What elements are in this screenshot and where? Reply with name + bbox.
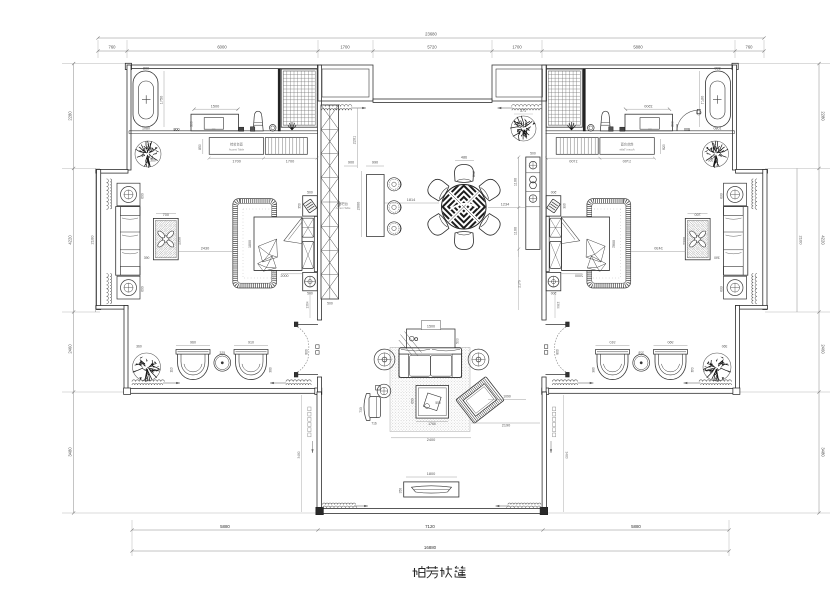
svg-text:1700: 1700 (569, 159, 577, 163)
svg-text:1700: 1700 (512, 45, 522, 50)
svg-text:16880: 16880 (424, 545, 437, 550)
svg-text:1700: 1700 (286, 159, 294, 163)
svg-text:500: 500 (551, 191, 557, 195)
svg-text:910: 910 (248, 340, 254, 344)
svg-text:300: 300 (670, 121, 674, 127)
svg-text:Accent Table: Accent Table (229, 148, 245, 152)
svg-text:1080: 1080 (714, 126, 722, 130)
svg-text:1500: 1500 (644, 105, 652, 109)
svg-text:1750: 1750 (700, 96, 704, 104)
svg-text:800: 800 (143, 67, 149, 71)
svg-text:900: 900 (348, 161, 354, 165)
svg-text:3480: 3480 (297, 451, 301, 458)
svg-text:600: 600 (719, 193, 723, 199)
svg-text:325: 325 (638, 351, 644, 355)
svg-text:2400: 2400 (427, 438, 435, 442)
svg-text:1080: 1080 (142, 126, 150, 130)
svg-text:600: 600 (719, 286, 723, 292)
svg-text:1700: 1700 (623, 159, 631, 163)
svg-text:325: 325 (220, 351, 226, 355)
svg-text:500: 500 (456, 338, 460, 344)
svg-text:5880: 5880 (633, 45, 643, 50)
svg-text:500: 500 (530, 152, 536, 156)
svg-text:850: 850 (662, 144, 666, 150)
svg-text:390: 390 (714, 256, 720, 260)
svg-text:2280: 2280 (68, 111, 73, 121)
svg-text:Accent Table: Accent Table (336, 206, 351, 210)
svg-text:500: 500 (327, 302, 333, 306)
svg-text:1364: 1364 (306, 301, 310, 308)
svg-text:760: 760 (109, 45, 117, 50)
svg-text:1350: 1350 (682, 237, 686, 245)
svg-text:1800: 1800 (427, 472, 435, 476)
svg-text:1814: 1814 (407, 198, 415, 202)
svg-text:1090: 1090 (503, 394, 511, 398)
svg-text:酒吧台: 酒吧台 (338, 201, 349, 206)
svg-text:2460: 2460 (821, 344, 826, 354)
svg-text:812: 812 (472, 171, 476, 177)
svg-text:350: 350 (298, 203, 302, 209)
svg-text:360: 360 (136, 345, 142, 349)
svg-text:2430: 2430 (654, 247, 662, 251)
svg-text:1234: 1234 (501, 203, 509, 207)
svg-text:910: 910 (610, 340, 616, 344)
svg-text:1760: 1760 (428, 422, 436, 426)
svg-text:350: 350 (399, 488, 403, 494)
svg-text:600: 600 (141, 193, 145, 199)
svg-text:371: 371 (520, 109, 526, 113)
svg-text:3480: 3480 (68, 447, 73, 457)
svg-text:1100: 1100 (514, 178, 518, 186)
svg-text:110: 110 (690, 367, 694, 372)
svg-text:650: 650 (410, 398, 414, 404)
svg-text:500: 500 (307, 191, 313, 195)
svg-text:380: 380 (269, 367, 273, 373)
svg-text:850: 850 (198, 144, 202, 150)
svg-text:2460: 2460 (68, 344, 73, 354)
svg-text:380: 380 (591, 367, 595, 373)
svg-text:760: 760 (746, 45, 754, 50)
svg-text:5880: 5880 (631, 524, 641, 529)
svg-text:1350: 1350 (178, 237, 182, 245)
svg-text:6000: 6000 (217, 45, 227, 50)
svg-text:360: 360 (150, 159, 156, 163)
svg-text:600: 600 (141, 286, 145, 292)
svg-text:800: 800 (555, 349, 559, 355)
svg-text:360: 360 (708, 159, 714, 163)
svg-text:2000: 2000 (281, 274, 289, 278)
svg-text:486: 486 (461, 156, 467, 160)
svg-text:2100: 2100 (90, 235, 95, 245)
svg-text:800: 800 (714, 67, 720, 71)
svg-text:2000: 2000 (357, 202, 361, 210)
svg-text:716: 716 (371, 421, 377, 425)
svg-text:1364: 1364 (556, 301, 560, 308)
svg-text:2201: 2201 (353, 136, 357, 144)
svg-text:110: 110 (170, 367, 174, 372)
svg-text:1800: 1800 (612, 240, 616, 248)
svg-text:360: 360 (722, 345, 728, 349)
svg-text:1100: 1100 (514, 227, 518, 235)
svg-text:800: 800 (304, 349, 308, 355)
svg-text:23680: 23680 (425, 32, 437, 37)
svg-text:2430: 2430 (201, 247, 209, 251)
svg-text:2190: 2190 (502, 424, 510, 428)
svg-text:4220: 4220 (68, 235, 73, 245)
svg-text:350: 350 (562, 203, 566, 209)
svg-text:2280: 2280 (821, 111, 826, 121)
svg-text:3480: 3480 (821, 447, 826, 457)
svg-text:960: 960 (190, 340, 196, 344)
svg-text:550: 550 (435, 401, 441, 405)
svg-text:390: 390 (144, 256, 150, 260)
svg-text:1700: 1700 (340, 45, 350, 50)
svg-text:Accent Table: Accent Table (619, 148, 635, 152)
svg-text:1700: 1700 (232, 159, 240, 163)
svg-text:7120: 7120 (425, 524, 435, 529)
svg-text:3480: 3480 (565, 451, 569, 458)
svg-text:梳妆台面: 梳妆台面 (621, 142, 634, 147)
svg-text:500: 500 (551, 291, 557, 295)
svg-text:2179: 2179 (518, 280, 522, 288)
svg-text:1800: 1800 (248, 240, 252, 248)
svg-text:300: 300 (190, 121, 194, 127)
svg-text:730: 730 (359, 407, 363, 413)
svg-text:2000: 2000 (575, 274, 583, 278)
svg-text:5880: 5880 (220, 524, 230, 529)
svg-text:5720: 5720 (427, 45, 437, 50)
svg-text:700: 700 (695, 213, 701, 217)
svg-text:2100: 2100 (799, 236, 804, 246)
svg-text:梳妆台面: 梳妆台面 (230, 142, 243, 147)
svg-text:990: 990 (372, 161, 378, 165)
svg-text:1500: 1500 (427, 324, 435, 328)
svg-text:700: 700 (163, 213, 169, 217)
svg-text:1750: 1750 (160, 96, 164, 104)
svg-text:4220: 4220 (821, 235, 826, 245)
svg-text:1500: 1500 (211, 105, 219, 109)
svg-text:960: 960 (668, 340, 674, 344)
